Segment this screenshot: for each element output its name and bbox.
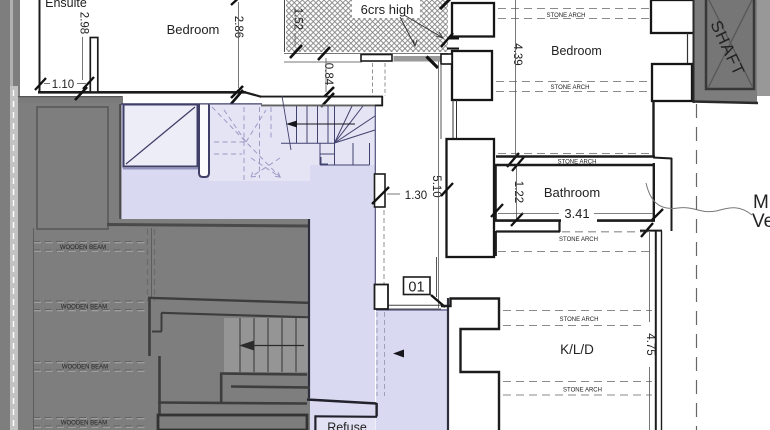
svg-text:5.10: 5.10 — [430, 175, 442, 197]
svg-text:Bedroom: Bedroom — [551, 44, 602, 58]
svg-text:1.30: 1.30 — [405, 190, 427, 202]
svg-text:STONE ARCH: STONE ARCH — [559, 237, 598, 243]
svg-text:1.52: 1.52 — [292, 8, 304, 30]
svg-text:WOODEN BEAM: WOODEN BEAM — [60, 245, 106, 251]
svg-text:2.98: 2.98 — [78, 12, 90, 34]
svg-text:01: 01 — [408, 280, 424, 296]
svg-text:0.84: 0.84 — [322, 63, 334, 86]
svg-text:6crs high: 6crs high — [361, 2, 414, 17]
svg-text:Refuse: Refuse — [327, 421, 367, 430]
svg-text:WOODEN BEAM: WOODEN BEAM — [62, 365, 108, 371]
svg-text:WOODEN BEAM: WOODEN BEAM — [61, 305, 107, 311]
svg-text:STONE ARCH: STONE ARCH — [551, 85, 590, 91]
svg-text:K/L/D: K/L/D — [560, 342, 594, 357]
svg-text:Bathroom: Bathroom — [544, 185, 600, 200]
svg-text:Ve: Ve — [752, 211, 770, 232]
svg-text:Ensuite: Ensuite — [45, 0, 87, 10]
svg-text:4.75: 4.75 — [644, 333, 656, 355]
svg-text:M: M — [753, 192, 769, 213]
svg-text:STONE ARCH: STONE ARCH — [547, 13, 586, 19]
svg-text:Bedroom: Bedroom — [167, 22, 220, 37]
svg-text:STONE ARCH: STONE ARCH — [563, 388, 602, 394]
svg-text:WOODEN BEAM: WOODEN BEAM — [61, 421, 107, 427]
svg-text:2.86: 2.86 — [232, 16, 244, 38]
svg-text:1.10: 1.10 — [52, 79, 74, 91]
svg-text:3.41: 3.41 — [564, 206, 589, 221]
svg-text:4.39: 4.39 — [511, 43, 523, 65]
svg-text:1.22: 1.22 — [512, 181, 524, 203]
svg-text:STONE ARCH: STONE ARCH — [560, 317, 599, 323]
